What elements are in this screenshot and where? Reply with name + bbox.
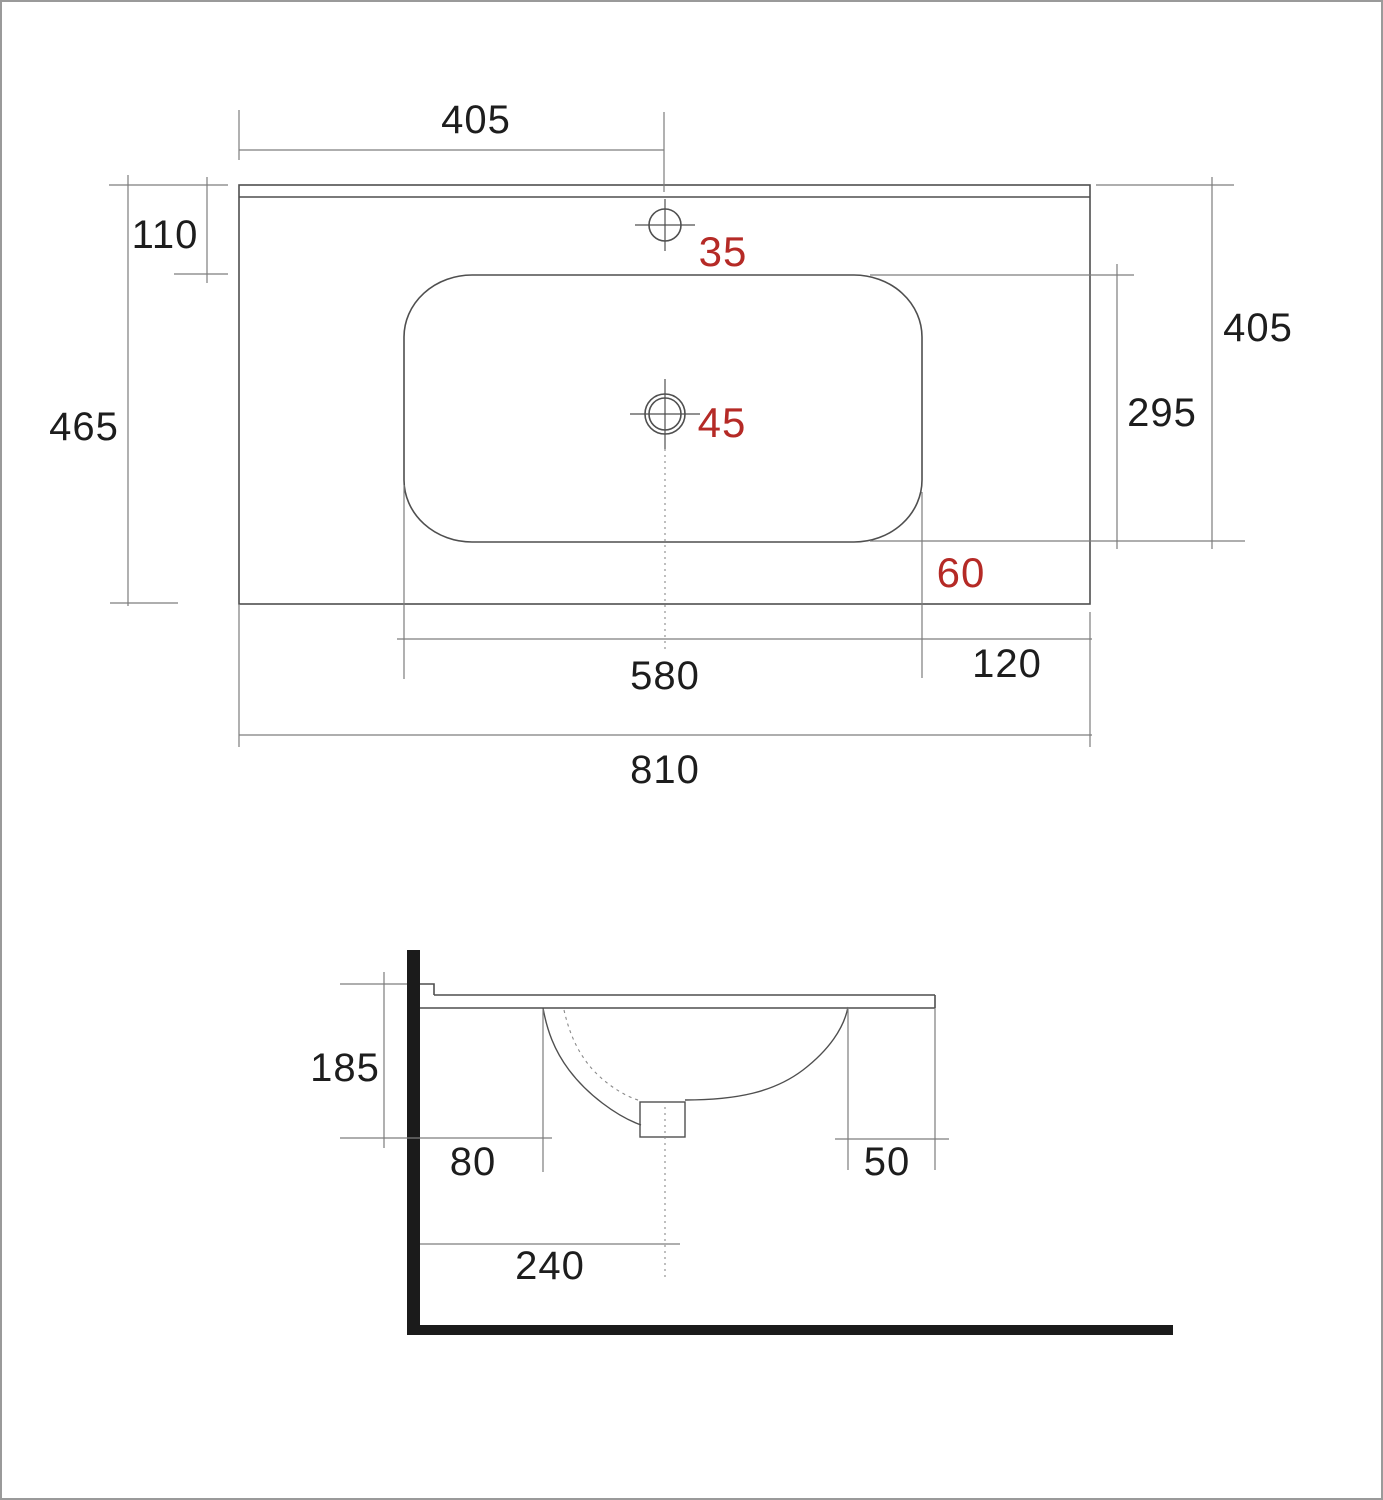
dim-label-basin-to-right-edge: 120 [972,644,1042,684]
side-view-dimension-lines [340,972,949,1244]
drain-outlet [640,1102,685,1137]
floor-section [407,1325,1173,1335]
bowl-inner-hidden-line [564,1010,641,1101]
faucet-hole-icon [635,199,695,251]
bowl-profile-right [685,1007,848,1100]
dim-label-basin-height: 185 [310,1048,380,1088]
dim-label-total-width: 810 [630,750,700,790]
dim-label-bowl-to-front-edge: 50 [864,1142,911,1182]
dim-label-basin-width: 580 [630,656,700,696]
backsplash-lip [420,984,434,995]
dim-label-wall-to-drain-center: 240 [515,1246,585,1286]
bowl-profile-left [543,1008,641,1125]
dim-label-wall-to-bowl: 80 [450,1142,497,1182]
dim-label-right-depth: 405 [1223,308,1293,348]
dim-label-drain-hole-diameter: 45 [698,402,747,444]
top-view-dimension-lines [109,110,1245,747]
drain-hole-icon [630,379,700,449]
dim-label-rim-to-basin: 110 [132,215,199,255]
dim-label-basin-depth: 295 [1127,393,1197,433]
dim-label-faucet-hole-diameter: 35 [699,231,748,273]
dim-label-faucet-offset: 405 [441,100,511,140]
dim-label-basin-to-front-edge: 60 [937,552,986,594]
wall-section [407,950,420,1334]
technical-drawing-page: 405 110 465 405 295 35 45 60 580 120 810… [0,0,1383,1500]
dim-label-total-depth: 465 [49,407,119,447]
basin-outline [404,275,922,542]
